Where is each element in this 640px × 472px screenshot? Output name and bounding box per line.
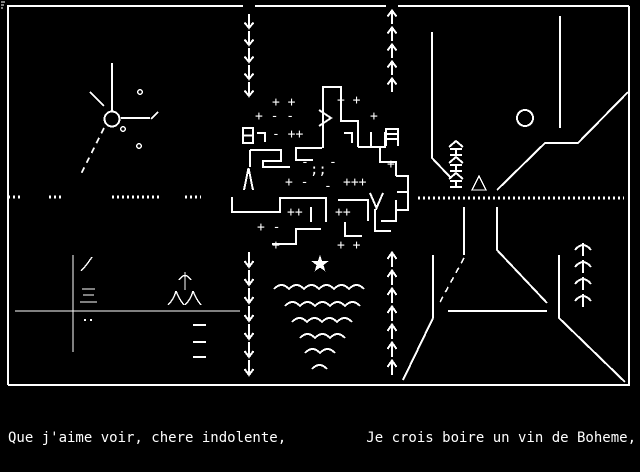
yellow-moon-dot [517,110,533,126]
down-arrows-column [245,14,254,375]
stack-glyph-column [449,141,463,187]
poem-left-block: Que j'aime voir, chere indolente, De ton… [8,396,286,472]
low-dash-mid: - [324,180,332,193]
game-scene[interactable]: + ++ ++ - -+- ++--;;+ --+++++++++ -++ + … [0,0,640,472]
arrow-right-glyph [319,110,331,126]
plus-pair-mid-left: ++ [287,206,303,219]
person-glyph-left [168,291,184,305]
plus-dash-dash-row: + - - [255,110,294,123]
water-waves [274,285,364,369]
maze-glyphs [243,110,398,208]
poem-line: Que j'aime voir, chere indolente, [8,430,286,447]
stacked-dashes [193,325,206,357]
right-panel-lines [403,16,628,382]
plus-bottom-single: + [272,239,280,252]
dash-plusplus-row: - ++ [272,128,303,141]
plus-pair-bottom: + + [337,239,360,252]
road-outer-right [559,255,625,382]
no-stroke-glyph [81,257,92,271]
axis-cross [15,255,240,352]
triangle-glyph [472,176,486,190]
plus-top-right: + [370,110,378,123]
poem-line: Je crois boire un vin de Boheme, [366,430,636,447]
left-lower-group [15,255,240,357]
caret-glyph [244,168,253,190]
person-glyph-right [185,291,201,305]
three-bars-glyph [80,289,97,302]
small-ring-1 [138,90,143,95]
mountain-road [497,92,628,190]
plus-pair-top-right: + + [337,94,360,107]
starburst [81,63,158,174]
tree-up-arrow [179,272,191,290]
small-ring-3 [137,144,142,149]
road-right [497,207,547,303]
road-dashed-diagonal [440,258,464,302]
small-ring-2 [121,127,126,132]
pole-line-left [432,32,451,178]
vee-glyph [370,193,383,208]
plus-right-edge: + [387,158,395,171]
sun-kanji-icon [243,128,253,143]
plus-dash-mid: + - [285,176,308,189]
dash-center-right: - [329,156,337,169]
corner-mark [1,2,5,8]
road-outer-left [403,255,433,380]
plus-dash-bottom: + - [257,221,280,234]
star-icon [311,255,328,271]
moon-kanji-icon [386,129,398,146]
frame-border [7,6,630,385]
plus-pair-top-left: + + [272,96,295,109]
fir-tree-arrows [575,243,591,307]
dash-center-left: - [301,156,309,169]
up-arrows-column [388,11,397,376]
red-planet-dot [105,112,120,127]
semicolon-pair: ;; [310,164,327,177]
plus-triple: +++ [343,176,366,189]
starburst-dashed-ray [81,128,104,174]
poem-right-block: Je crois boire un vin de Boheme, Amer et… [366,396,636,472]
plus-pair-mid-right: ++ [335,206,351,219]
